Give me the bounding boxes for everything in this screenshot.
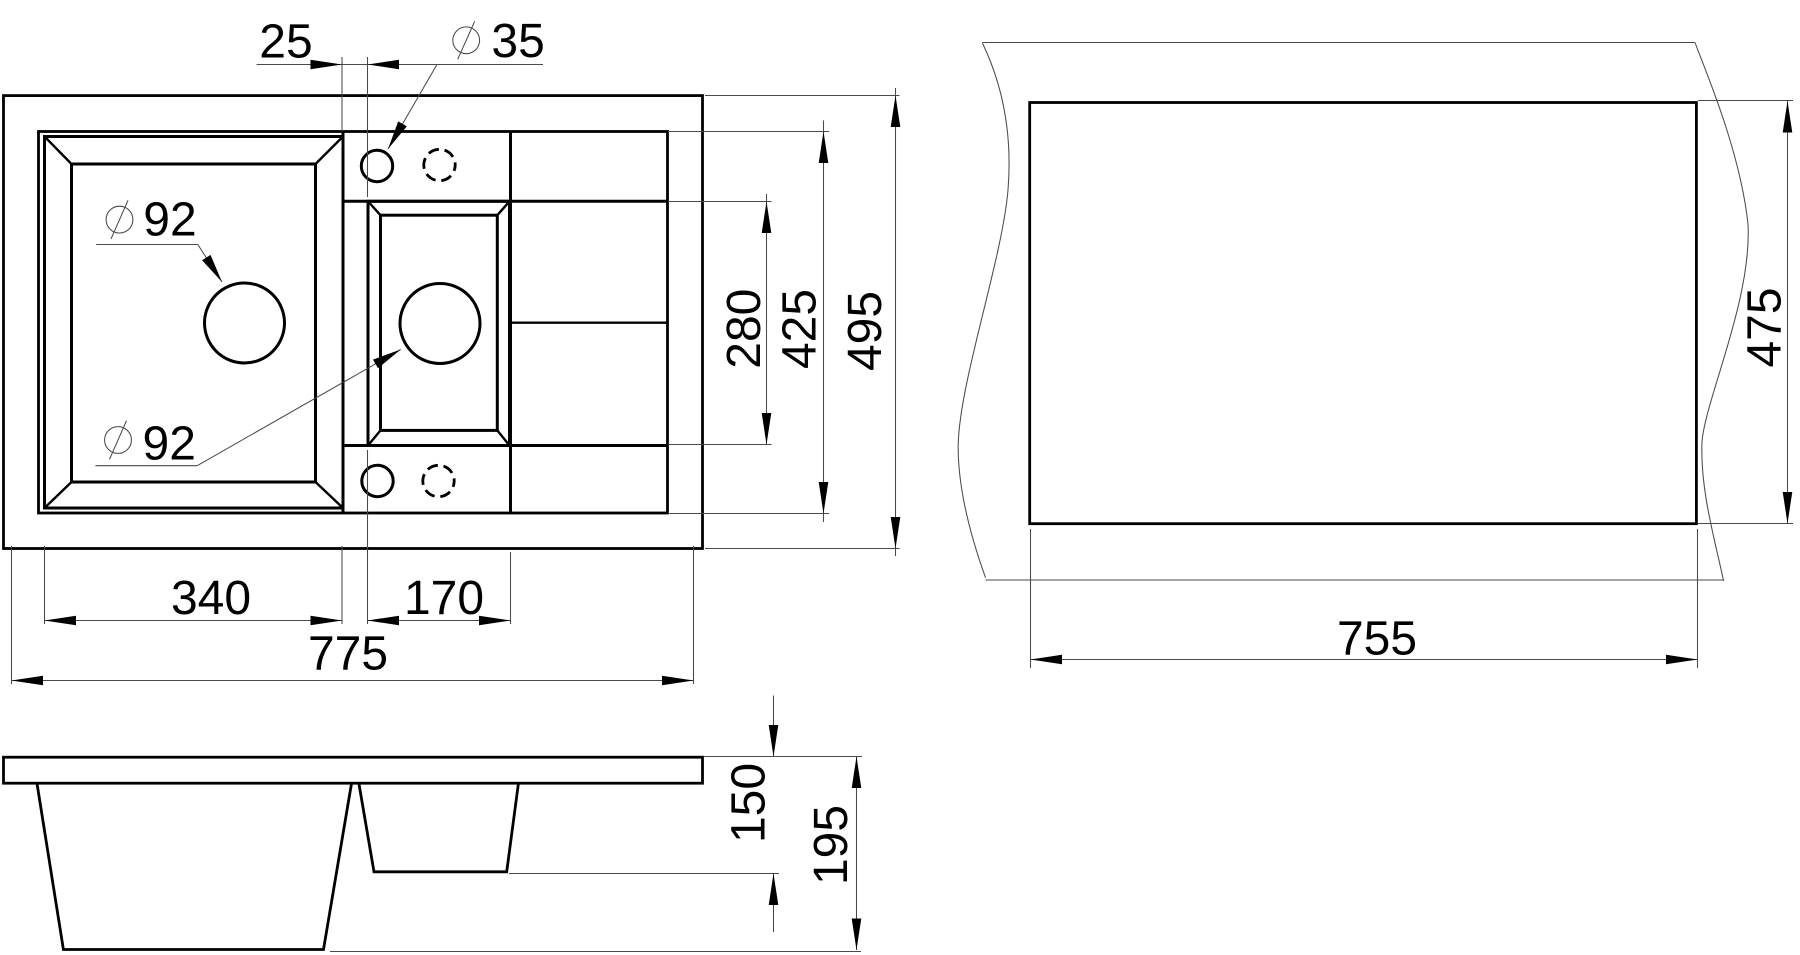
svg-text:425: 425 [774,289,827,369]
svg-text:755: 755 [1337,613,1417,666]
svg-text:35: 35 [491,15,544,68]
svg-text:150: 150 [723,763,776,843]
svg-text:25: 25 [259,16,312,69]
svg-text:495: 495 [839,291,892,371]
svg-text:280: 280 [718,289,771,369]
svg-text:775: 775 [308,628,388,681]
svg-text:92: 92 [143,194,196,247]
svg-text:170: 170 [404,572,484,625]
svg-text:92: 92 [143,418,196,471]
svg-text:195: 195 [805,805,858,885]
svg-text:475: 475 [1739,287,1792,367]
svg-text:340: 340 [171,572,251,625]
